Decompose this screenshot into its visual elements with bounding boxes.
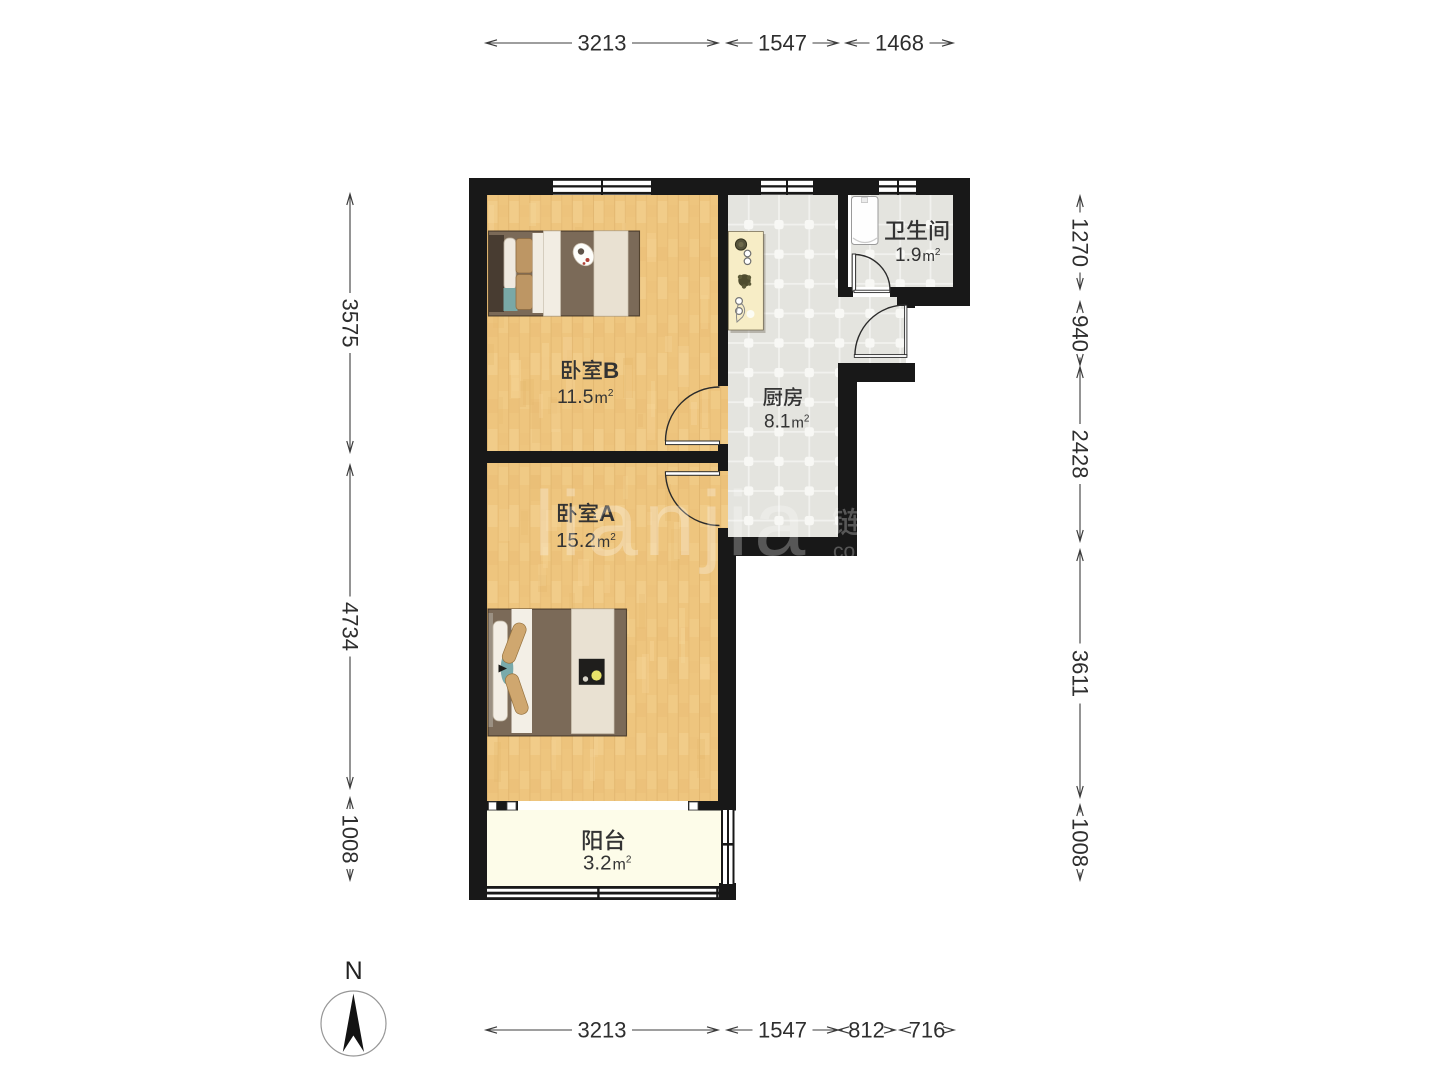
svg-text:3213: 3213 bbox=[578, 1018, 627, 1043]
svg-text:2428: 2428 bbox=[1068, 430, 1093, 479]
svg-text:1.9m2: 1.9m2 bbox=[895, 245, 941, 266]
svg-text:3575: 3575 bbox=[338, 299, 363, 348]
svg-text:3611: 3611 bbox=[1068, 650, 1093, 697]
svg-text:lianjia: lianjia bbox=[534, 473, 811, 575]
svg-text:1468: 1468 bbox=[875, 31, 924, 56]
svg-text:N: N bbox=[345, 957, 363, 985]
svg-text:11.5m2: 11.5m2 bbox=[557, 386, 614, 408]
svg-text:1008: 1008 bbox=[338, 815, 363, 864]
svg-text:812: 812 bbox=[848, 1018, 885, 1043]
svg-text:940: 940 bbox=[1068, 315, 1093, 352]
svg-text:1008: 1008 bbox=[1068, 818, 1093, 867]
svg-text:1547: 1547 bbox=[758, 1018, 807, 1043]
svg-text:1270: 1270 bbox=[1068, 218, 1093, 267]
svg-text:4734: 4734 bbox=[338, 602, 363, 651]
svg-text:3213: 3213 bbox=[578, 31, 627, 56]
svg-text:8.1m2: 8.1m2 bbox=[764, 412, 810, 433]
svg-text:1547: 1547 bbox=[758, 31, 807, 56]
svg-text:co: co bbox=[833, 540, 855, 563]
svg-text:716: 716 bbox=[909, 1018, 946, 1043]
svg-text:B: B bbox=[603, 358, 619, 383]
